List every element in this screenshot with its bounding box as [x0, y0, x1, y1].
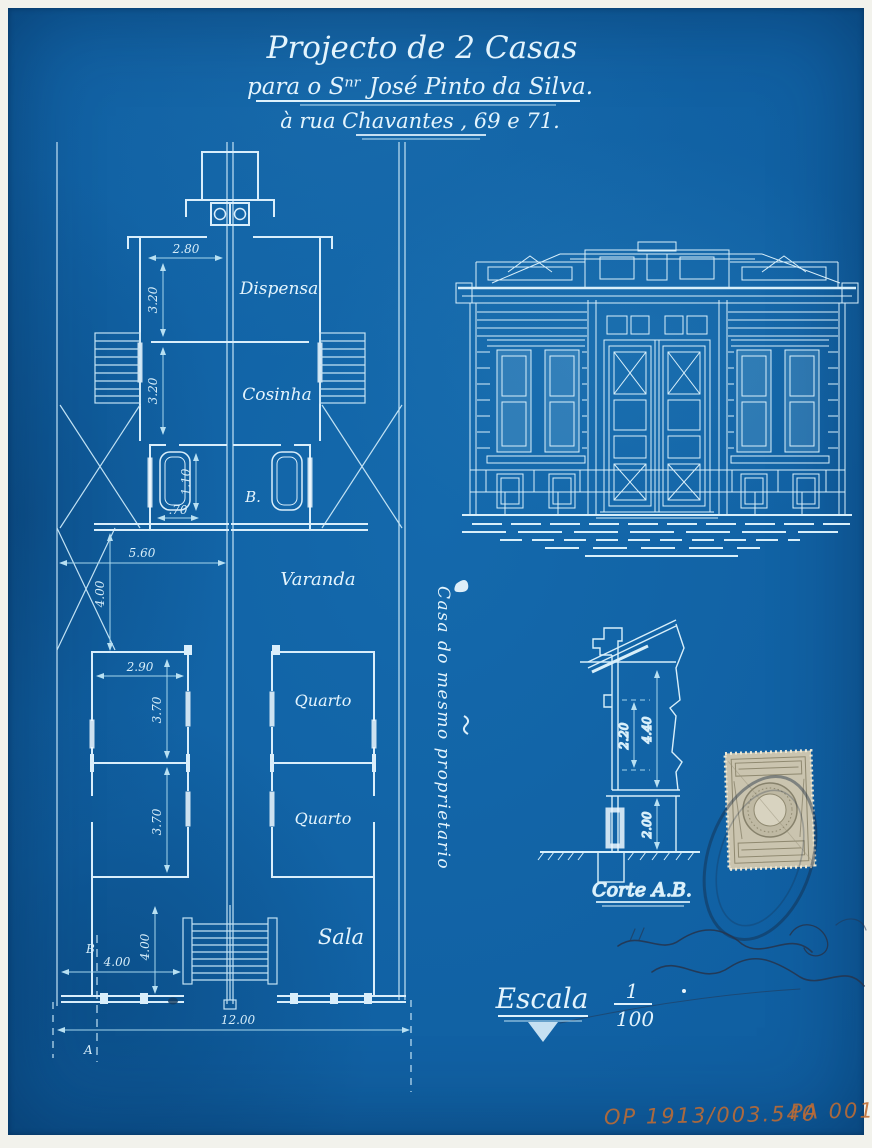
- dim-varanda-depth: 4.00: [93, 580, 107, 608]
- white-speck-small: [682, 989, 686, 993]
- section-cut-profile: [670, 624, 684, 790]
- bathtub-right-inner: [277, 457, 297, 505]
- section-dim-window: 2.20: [617, 722, 631, 750]
- section-label: Corte A.B.: [592, 879, 692, 901]
- section-wall-cap: [593, 628, 622, 655]
- facade-window-right: [731, 340, 829, 463]
- archive-code-op: OP 1913/003.540: [604, 1101, 818, 1129]
- dim-tub-len: 1.10: [179, 468, 193, 495]
- label-varanda: Varanda: [280, 569, 355, 590]
- floor-plan: Dispensa Cosinha B. Varanda Quarto Quart…: [53, 142, 453, 1092]
- scale-numerator: 1: [626, 979, 639, 1003]
- facade-basement: [462, 470, 852, 515]
- facade-roof-parapet: [456, 242, 858, 303]
- plan-boundary-lines: [53, 142, 411, 1092]
- facade-window-left: [487, 340, 585, 463]
- dim-mid-width: 5.60: [129, 546, 156, 560]
- front-staircase: [183, 905, 277, 1009]
- title-line3-suffix: , 69 e 71.: [454, 109, 560, 133]
- section-dim-base: 2.00: [640, 811, 654, 839]
- blueprint-drawing: Projecto de 2 Casas para o Sⁿʳ José Pint…: [0, 0, 872, 1148]
- signature-mark: [560, 919, 866, 1023]
- scale-denominator: 100: [616, 1007, 654, 1031]
- porch-bracing: [57, 405, 402, 650]
- section-molding-1: [604, 695, 612, 707]
- title-line3: à rua Chavantes , 69 e 71.: [280, 109, 560, 133]
- title-line3-prefix: à rua: [280, 109, 342, 133]
- section-marker-b: B: [85, 942, 95, 956]
- dim-rear-width: 2.80: [172, 242, 200, 256]
- section-ground-hatch: [538, 852, 694, 860]
- scale-word: Escala: [495, 982, 589, 1015]
- scale-note: Escala 1 100: [495, 979, 686, 1042]
- side-stairs-right: [320, 333, 365, 403]
- section-drawing: 2.20 4.40 2.00 Corte A.B.: [538, 620, 700, 906]
- section-marker-a: A: [83, 1043, 93, 1057]
- label-quarto-2: Quarto: [295, 809, 352, 828]
- bath-cells: [95, 445, 367, 530]
- title-line3-street: Chavantes: [342, 109, 454, 133]
- scale-flourish: [528, 1022, 558, 1042]
- white-speck-2: [464, 716, 468, 734]
- facade-entry-door: [596, 316, 718, 518]
- label-cosinha: Cosinha: [242, 385, 311, 405]
- label-sala: Sala: [318, 925, 364, 949]
- dim-front-depth: 4.00: [138, 933, 152, 961]
- facade-ground: [462, 524, 850, 556]
- rear-annex: [128, 152, 332, 248]
- title-line2: para o Sⁿʳ José Pinto da Silva.: [247, 74, 593, 100]
- side-note: Casa do mesmo proprietario: [433, 586, 453, 870]
- blueprint-photo: Projecto de 2 Casas para o Sⁿʳ José Pint…: [0, 0, 872, 1148]
- dim-rear-depth-1: 3.20: [146, 286, 160, 313]
- room-labels: Dispensa Cosinha B. Varanda Quarto Quart…: [239, 279, 364, 949]
- dark-smudge: [168, 998, 178, 1005]
- archive-code: OP 1913/003.540 PA 001: [604, 1098, 872, 1129]
- dim-total-width: 12.00: [221, 1013, 256, 1027]
- dim-front-width: 4.00: [103, 955, 131, 969]
- dim-tub-width: .70: [168, 503, 187, 517]
- white-speck-1: [454, 580, 468, 592]
- label-bath: B.: [244, 488, 261, 506]
- dim-room-width: 2.90: [126, 660, 154, 674]
- side-stairs-left: [95, 333, 140, 403]
- archive-code-pa: PA 001: [790, 1098, 872, 1123]
- facade-elevation: [456, 242, 858, 556]
- title-block: Projecto de 2 Casas para o Sⁿʳ José Pint…: [247, 30, 593, 139]
- section-footing: [598, 852, 624, 882]
- dim-rear-depth-2: 3.20: [146, 377, 160, 404]
- dim-room-depth-1: 3.70: [150, 696, 164, 723]
- dim-room-depth-2: 3.70: [150, 808, 164, 835]
- rear-block-walls: [140, 237, 320, 440]
- label-quarto-1: Quarto: [295, 691, 352, 710]
- tax-stamp: [725, 751, 815, 870]
- section-dim-ceiling: 4.40: [640, 716, 654, 744]
- label-dispensa: Dispensa: [239, 279, 319, 299]
- title-line1: Projecto de 2 Casas: [266, 30, 578, 66]
